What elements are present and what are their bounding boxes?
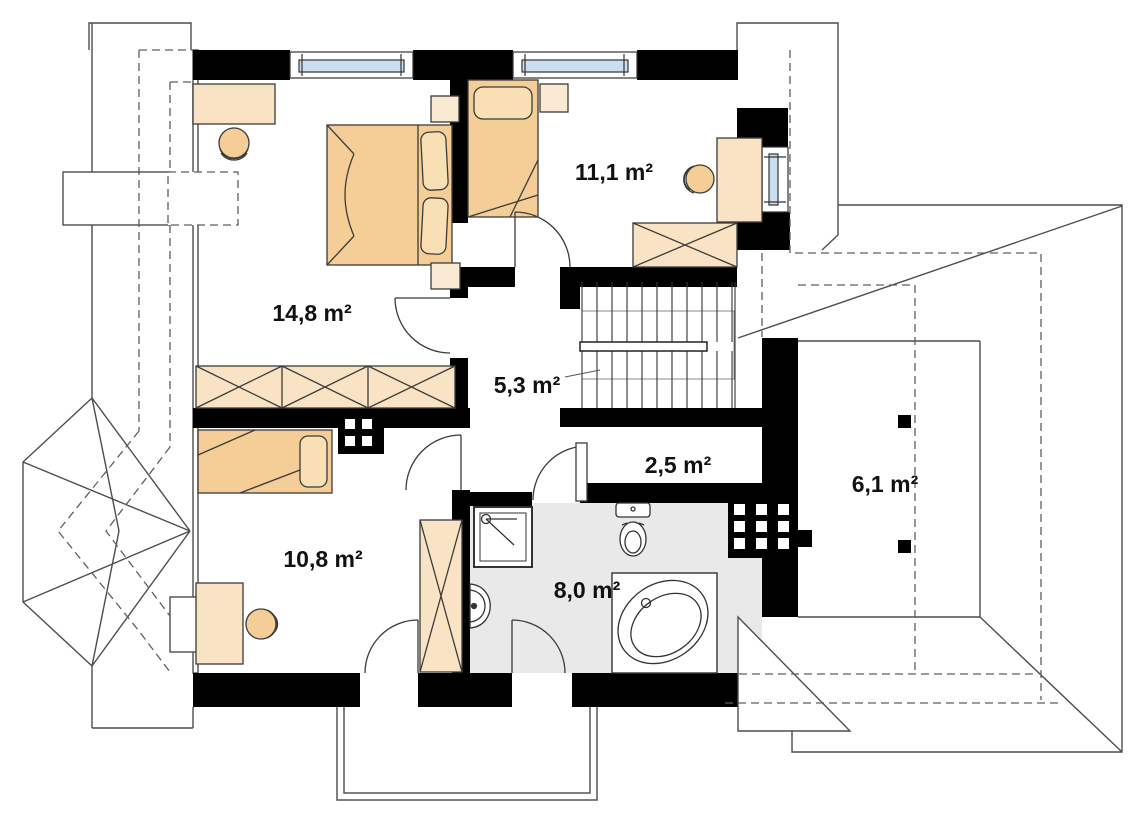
window-top-left	[290, 52, 413, 78]
nightstand-3	[540, 84, 568, 112]
label-storage: 2,5 m²	[645, 452, 712, 478]
desk-right	[717, 138, 762, 222]
desk-top-left	[193, 84, 275, 124]
stool-top-left	[219, 128, 249, 160]
chimney-grille-bathroom	[734, 504, 789, 549]
single-bed-right	[468, 80, 538, 217]
stairs	[565, 282, 735, 408]
label-hall: 5,3 m²	[494, 372, 561, 398]
desk-bottom-left	[196, 583, 243, 664]
balcony	[337, 707, 597, 800]
wardrobe-right	[633, 223, 737, 267]
label-roof-terrace: 6,1 m²	[852, 471, 919, 497]
door-bedroom-right	[515, 212, 570, 267]
door-storage	[576, 443, 587, 501]
label-bedroom-right: 11,1 m²	[575, 159, 653, 185]
double-bed	[327, 125, 452, 265]
stair-handrail	[580, 342, 707, 351]
window-right	[762, 147, 788, 212]
wardrobe-bottom	[420, 520, 462, 672]
wardrobe-hall	[196, 366, 455, 408]
stool-right	[684, 165, 714, 193]
label-bathroom: 8,0 m²	[554, 577, 621, 603]
label-bedroom-main: 14,8 m²	[272, 300, 352, 326]
door-bedroom-main	[395, 298, 450, 353]
floor-plan-page: 14,8 m² 11,1 m² 5,3 m² 2,5 m² 6,1 m² 10,…	[0, 0, 1138, 830]
floor-plan-drawing: 14,8 m² 11,1 m² 5,3 m² 2,5 m² 6,1 m² 10,…	[0, 0, 1138, 830]
nightstand-2	[431, 263, 460, 289]
stool-bottom-left	[246, 609, 278, 639]
stair-treads-upper	[597, 282, 732, 342]
nightstand-1	[431, 96, 459, 122]
label-bedroom-bottom: 10,8 m²	[283, 546, 363, 572]
single-bed-bottom	[198, 430, 332, 493]
window-top-right	[513, 52, 637, 78]
door-bedroom-bottom	[406, 435, 461, 490]
door-balcony-left	[365, 620, 418, 673]
shower	[474, 507, 532, 567]
